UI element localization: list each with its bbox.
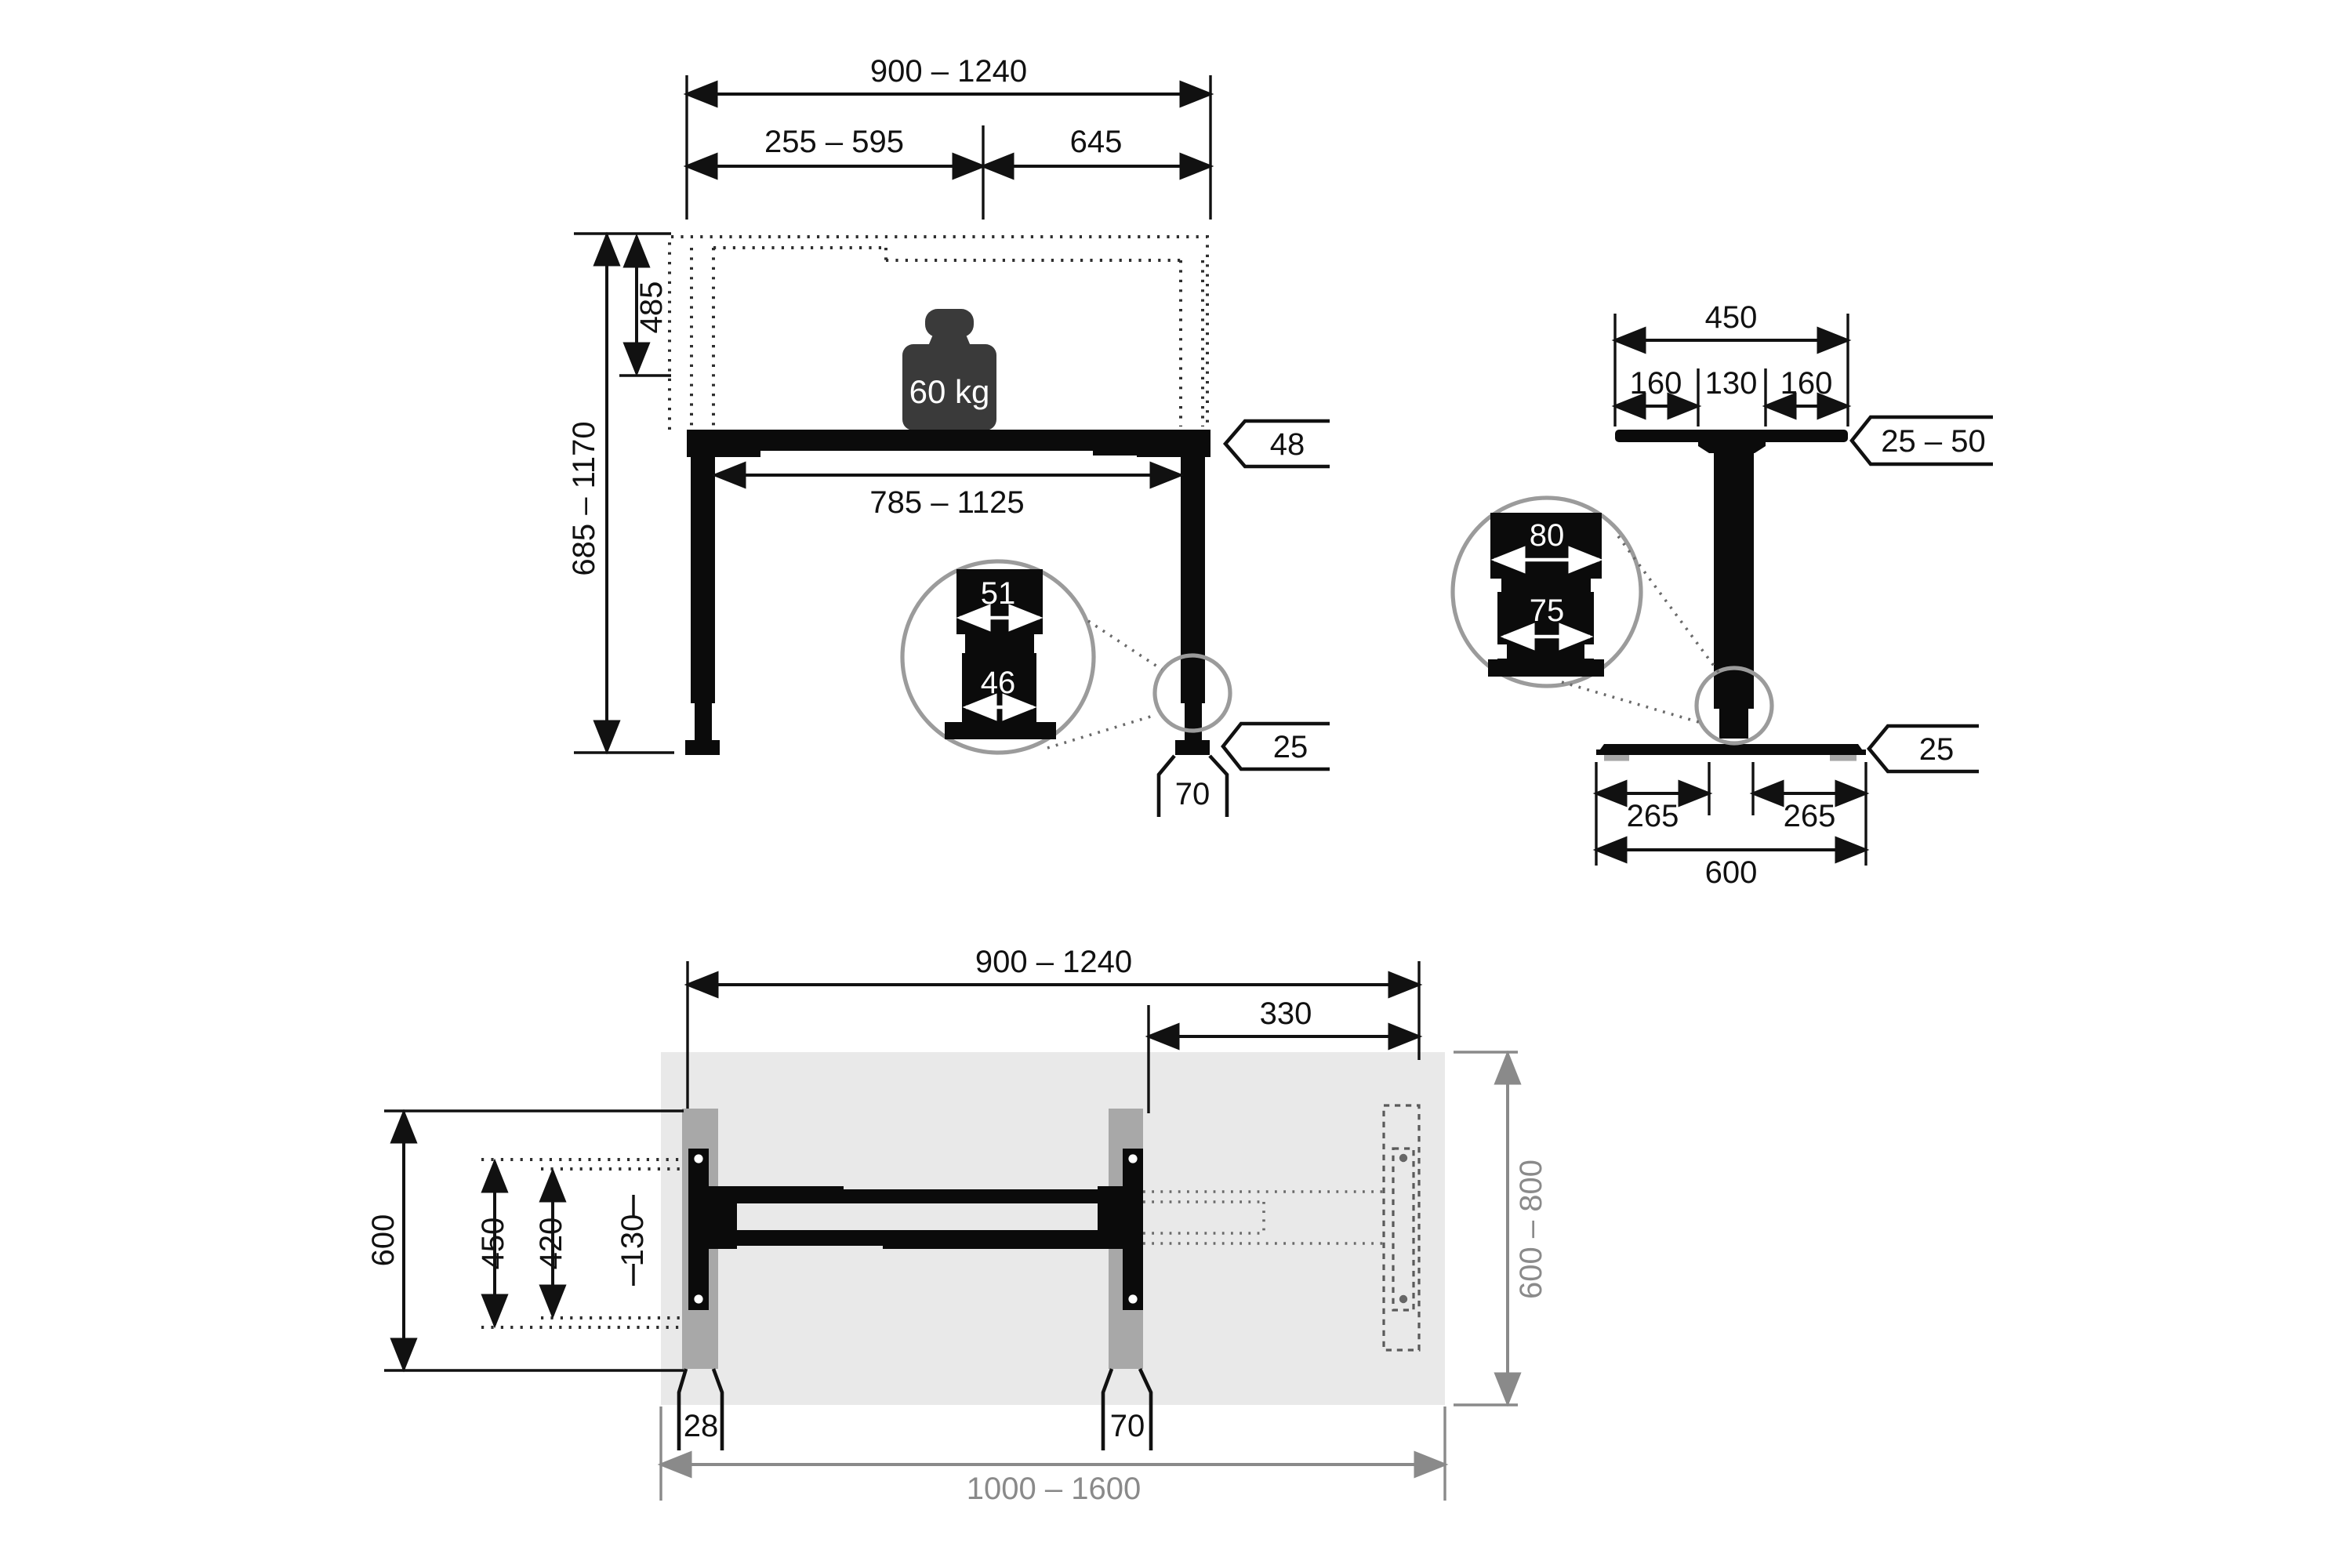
front-view: 900 – 1240 255 – 595 645 685 – 1170 485 [567,54,1330,817]
frame-thickness-label: 48 [1270,427,1305,462]
front-frame-beam [687,430,1210,457]
right-foot-screw-hole-top [1128,1154,1137,1163]
tabletop-width-label: 1000 – 1600 [967,1472,1141,1506]
front-right-width-label: 645 [1070,125,1123,159]
top-dim-crossbar-width: 130 [615,1195,650,1286]
side-callout-foot-height: 25 [1869,726,1979,771]
top-dim-tabletop-depth: 600 – 800 [1454,1052,1548,1405]
drawing-canvas: 900 – 1240 255 – 595 645 685 – 1170 485 [0,0,2352,1568]
leg-upper-width-label: 51 [981,576,1016,611]
top-dim-tabletop-width: 1000 – 1600 [661,1406,1445,1506]
front-height-range-label: 685 – 1170 [567,421,601,575]
side-dim-foot: 265 265 600 [1596,762,1866,890]
side-dim-bracket-segments: 160 130 160 [1615,366,1848,426]
front-callout-foot-height: 25 [1223,724,1330,769]
desk-dimension-drawing: 900 – 1240 255 – 595 645 685 – 1170 485 [0,0,2352,1568]
front-detail-circle: 51 46 [902,561,1094,753]
bracket-center-label: 130 [1705,366,1758,401]
load-capacity-label: 60 kg [909,373,990,410]
ghost-screw-hole-top [1399,1154,1407,1162]
side-detail-circle: 80 75 [1453,498,1641,686]
top-dim-plate-length: 450 [476,1160,684,1327]
top-foot-length-label: 600 [366,1214,401,1267]
plate-length-label: 450 [476,1218,510,1270]
left-foot-screw-hole-bottom [694,1294,702,1303]
side-foot-length-label: 600 [1705,855,1758,890]
front-callout-frame-thickness: 48 [1225,421,1330,466]
bracket-left-label: 160 [1630,366,1682,401]
hole-spacing-label: 420 [534,1218,568,1270]
front-total-width-label: 900 – 1240 [870,54,1027,89]
side-view: 450 160 130 160 25 – 50 [1453,300,1993,890]
front-dim-inner-width: 785 – 1125 [715,475,1181,520]
front-left-leg [685,457,720,755]
side-foot-height-label: 25 [1919,732,1955,767]
side-detail-connector-bottom [1562,682,1701,723]
foot-rear-label: 265 [1784,799,1836,833]
front-right-leg [1175,457,1210,755]
tabletop-surface [661,1052,1445,1405]
front-dim-adjust-range: 485 [619,237,671,376]
right-foot-screw-hole-bottom [1128,1294,1137,1303]
left-foot-screw-hole-top [694,1154,702,1163]
leg-lower-width-label: 46 [981,666,1016,700]
right-foot-width-label: 70 [1110,1409,1145,1443]
front-inner-width-label: 785 – 1125 [869,485,1024,520]
ghost-screw-hole-bottom [1399,1295,1407,1303]
weight-icon: 60 kg [902,309,996,430]
front-detail-connector-top [1088,621,1162,670]
top-frame-width-label: 900 – 1240 [975,945,1132,979]
foot-front-label: 265 [1627,799,1679,833]
column-upper-width-label: 80 [1530,518,1565,553]
bracket-right-label: 160 [1780,366,1833,401]
front-left-width-label: 255 – 595 [764,125,904,159]
side-callout-top-thickness: 25 – 50 [1852,417,1993,464]
front-callout-foot-width: 70 [1159,756,1227,817]
front-foot-height-label: 25 [1273,730,1308,764]
front-adjust-range-label: 485 [634,281,669,334]
column-lower-width-label: 75 [1530,593,1565,628]
top-view: 900 – 1240 330 [366,945,1548,1506]
left-foot-width-label: 28 [684,1409,719,1443]
front-dim-split-width: 255 – 595 645 [687,125,1210,220]
side-extension-label: 330 [1260,996,1312,1031]
tabletop-depth-label: 600 – 800 [1514,1160,1548,1299]
crossbar-width-label: 130 [615,1214,650,1267]
front-foot-width-label: 70 [1175,777,1210,811]
bracket-width-label: 450 [1705,300,1758,335]
top-thickness-label: 25 – 50 [1881,424,1985,459]
